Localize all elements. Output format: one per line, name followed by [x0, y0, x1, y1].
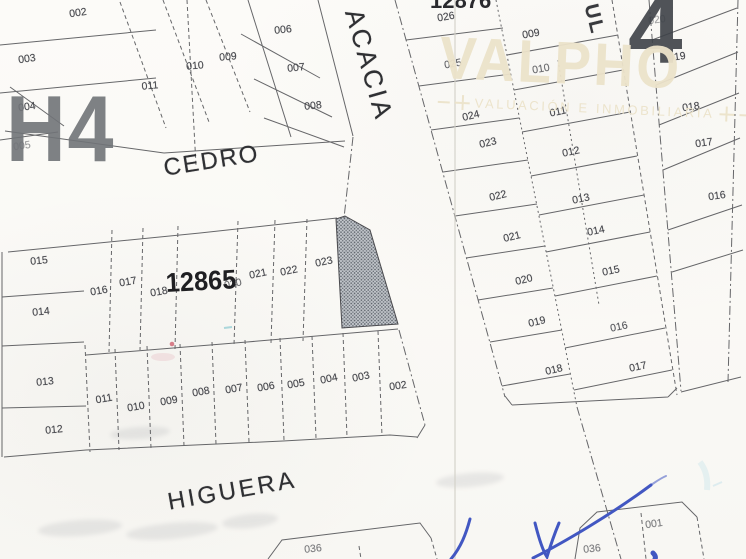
cadastral-map: { "map": { "streets": { "cedro": "CEDRO"…: [0, 0, 746, 559]
pen-signature: [0, 0, 746, 559]
faint-blue-smudge: [700, 462, 722, 490]
